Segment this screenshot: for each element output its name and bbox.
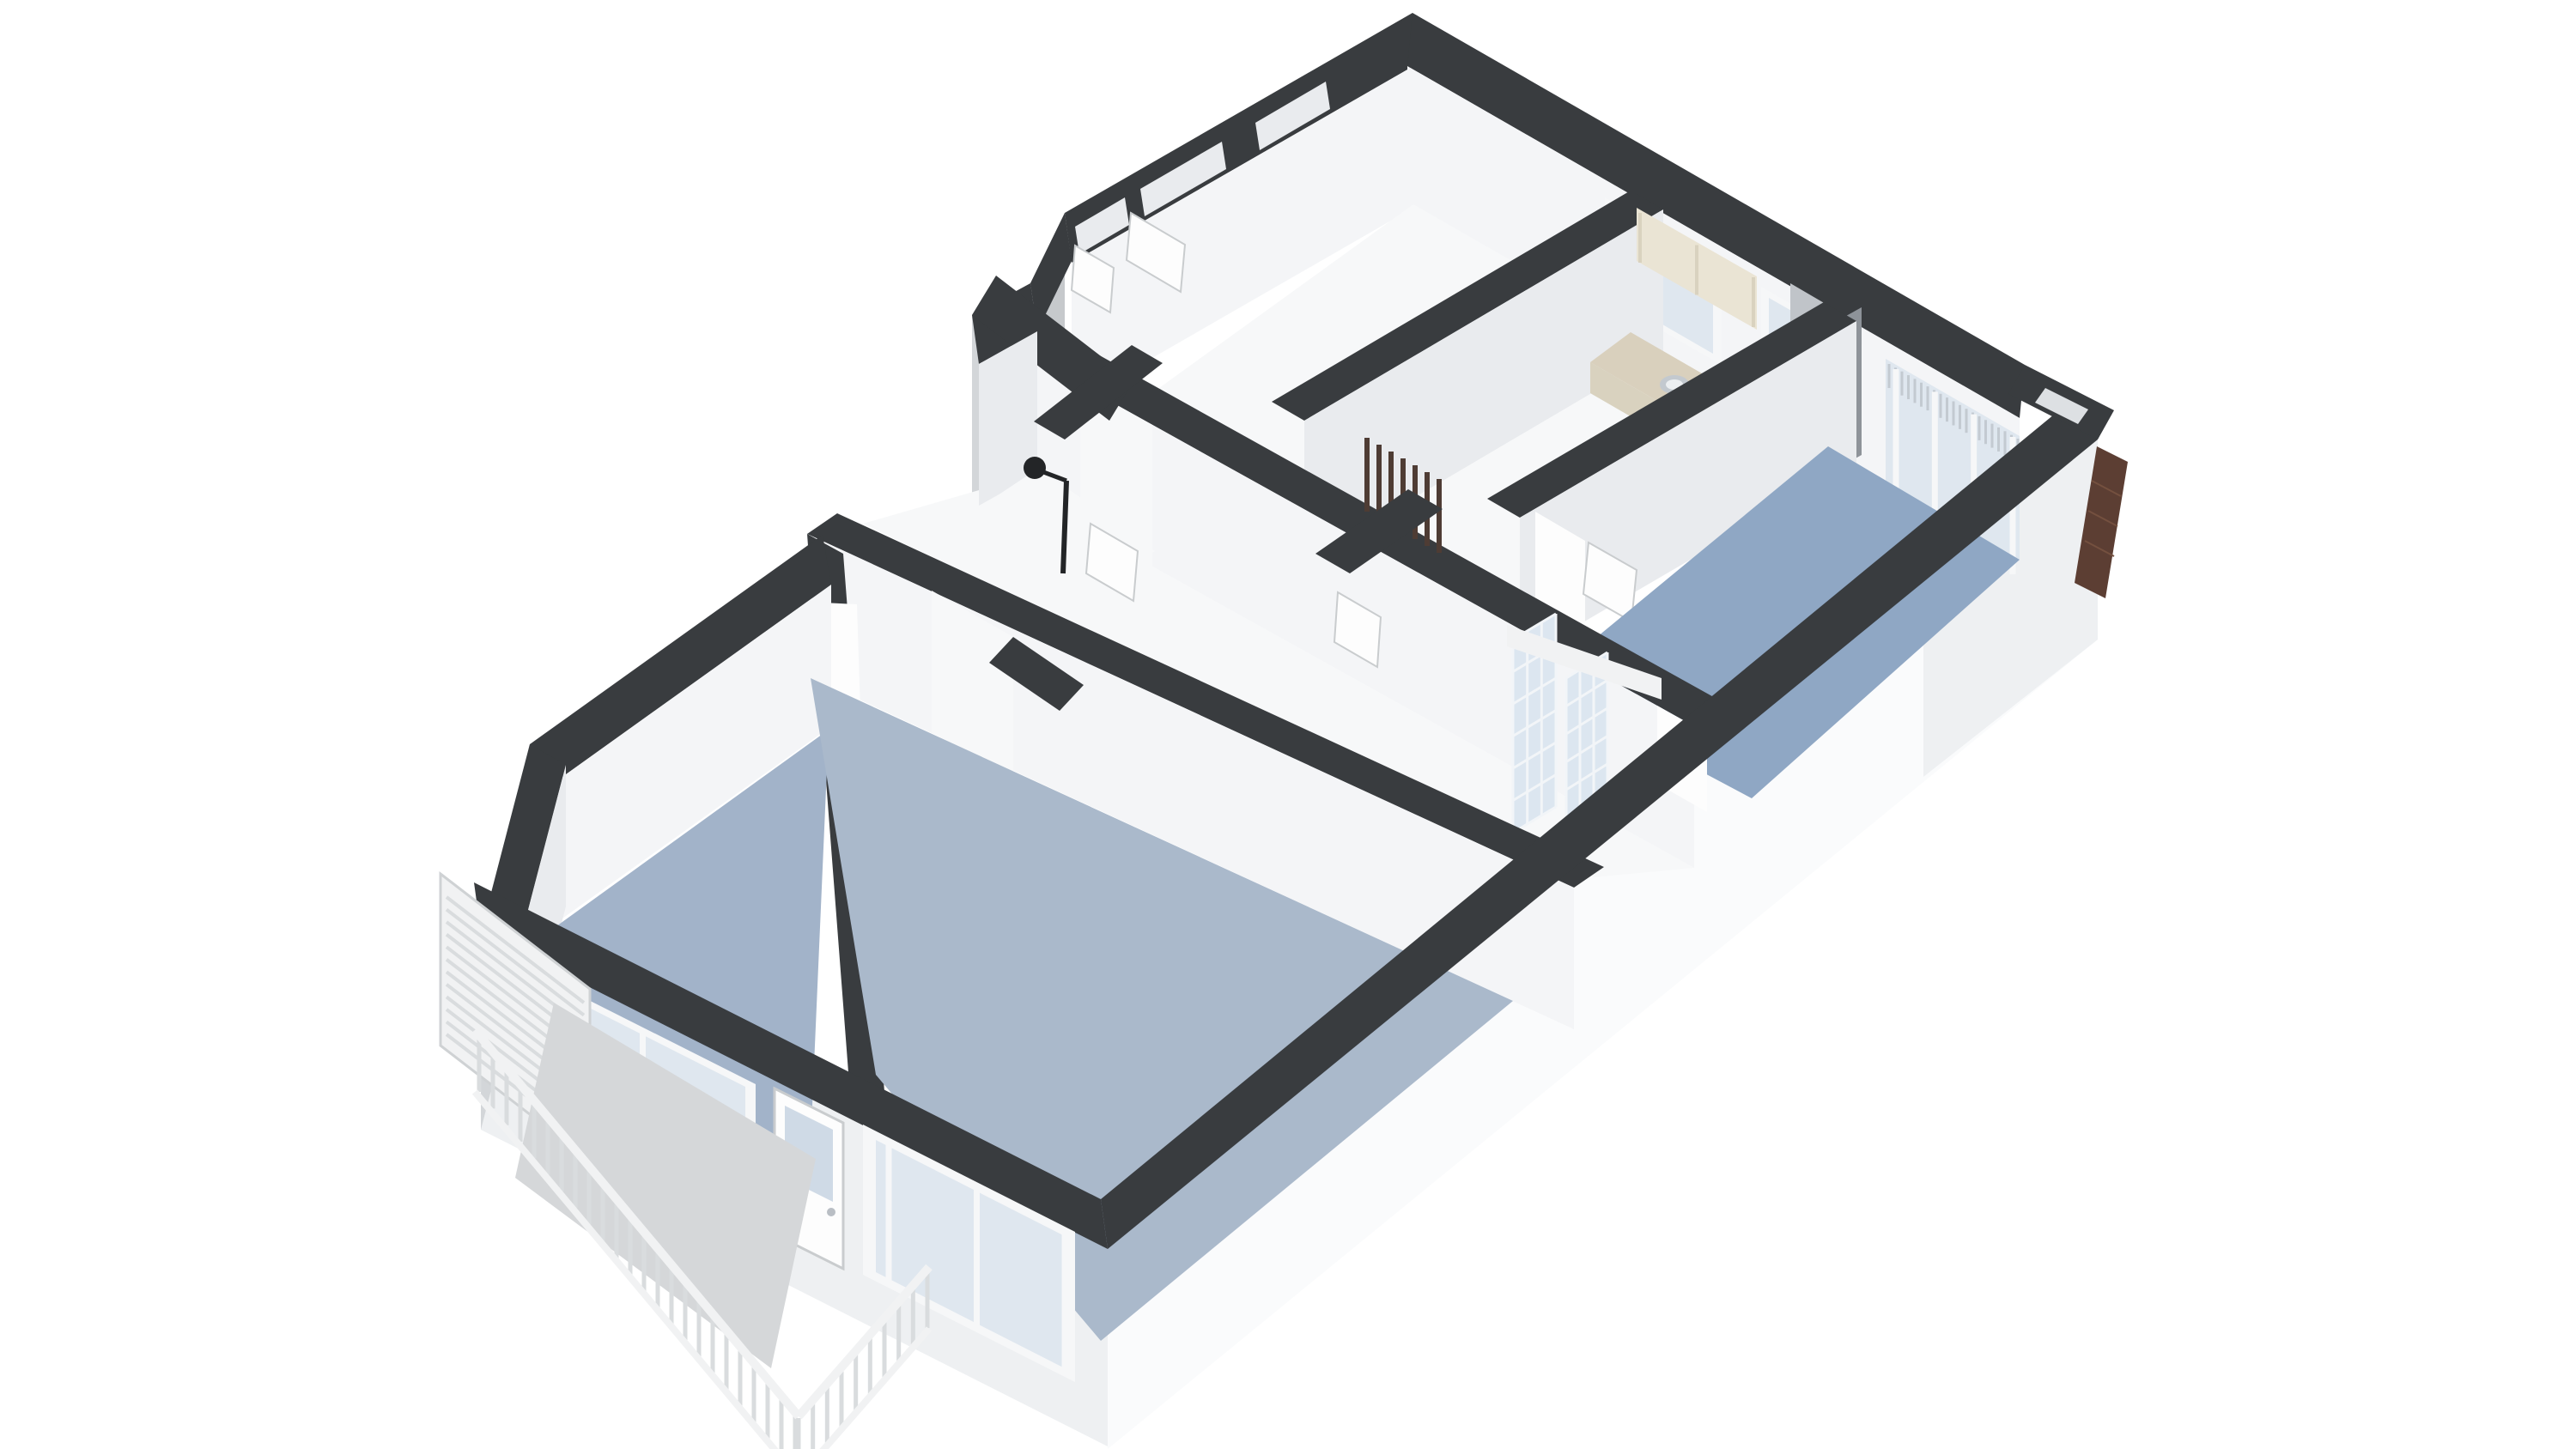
shower-head [1024, 457, 1046, 479]
balcony-door-handle [827, 1208, 835, 1216]
floorplan-svg [0, 0, 2576, 1449]
floorplan-3d-render [0, 0, 2576, 1449]
shower-pole [1063, 481, 1066, 573]
